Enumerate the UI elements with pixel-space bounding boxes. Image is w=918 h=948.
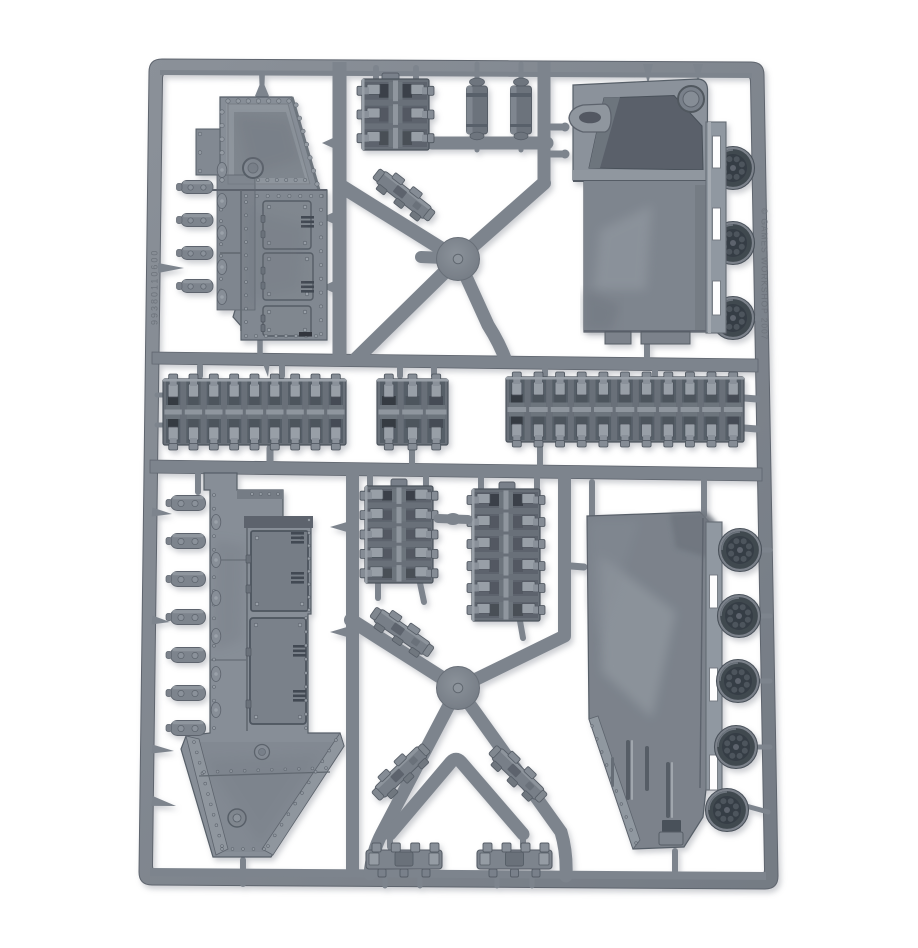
svg-text:99380110600: 99380110600 (150, 249, 160, 325)
svg-text:© GAMES WORKSHOP 2007: © GAMES WORKSHOP 2007 (760, 208, 770, 340)
